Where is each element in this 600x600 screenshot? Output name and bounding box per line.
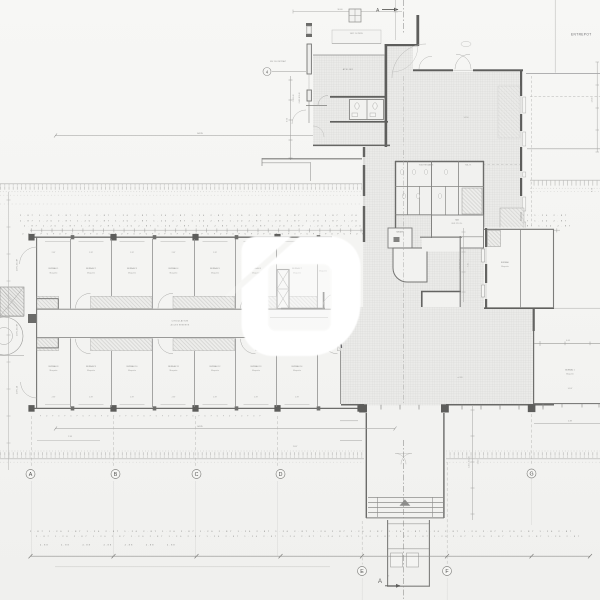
svg-text:2.87: 2.87 — [89, 252, 93, 254]
svg-text:BUREAU 1: BUREAU 1 — [49, 267, 59, 270]
svg-text:2.87 1.20 2.87: 2.87 1.20 2.87 — [17, 324, 19, 336]
svg-text:2.87: 2.87 — [52, 252, 56, 254]
svg-text:ENTREPOT: ENTREPOT — [571, 33, 592, 37]
svg-text:st 320: st 320 — [457, 376, 462, 379]
svg-text:2.87: 2.87 — [213, 252, 217, 254]
svg-text:BUREAU 3: BUREAU 3 — [127, 267, 137, 270]
svg-text:Moquette: Moquette — [211, 369, 219, 372]
svg-text:7.25: 7.25 — [468, 263, 470, 267]
svg-text:Moquette: Moquette — [211, 272, 219, 275]
svg-text:C: C — [195, 472, 199, 478]
svg-text:2.40 1.20 2.40: 2.40 1.20 2.40 — [460, 259, 462, 271]
svg-text:4.88: 4.88 — [568, 421, 572, 423]
svg-text:BUREAU: BUREAU — [501, 261, 510, 264]
svg-text:BUREAU 4: BUREAU 4 — [169, 267, 180, 270]
svg-text:BUREAU 9: BUREAU 9 — [86, 365, 96, 368]
svg-text:2.87 1.20 2.87: 2.87 1.20 2.87 — [17, 259, 19, 271]
svg-text:VEST. DU PERS.: VEST. DU PERS. — [350, 33, 364, 35]
svg-text:Moquette: Moquette — [50, 272, 58, 275]
svg-text:6.64: 6.64 — [566, 340, 570, 342]
svg-text:11.67: 11.67 — [293, 446, 298, 448]
svg-text:Moquette: Moquette — [50, 369, 58, 372]
svg-text:BUREAU 2: BUREAU 2 — [86, 267, 96, 270]
svg-text:2.87: 2.87 — [172, 397, 176, 399]
svg-text:A: A — [29, 472, 33, 478]
svg-text:Moquette: Moquette — [501, 265, 509, 268]
svg-text:TOILETTE DAMES: TOILETTE DAMES — [419, 164, 434, 167]
svg-text:Moquette: Moquette — [170, 369, 178, 372]
svg-text:BUREAU 10: BUREAU 10 — [127, 365, 138, 368]
svg-text:2.40 1.20 2.40: 2.40 1.20 2.40 — [299, 93, 301, 104]
svg-text:2.87 1.20: 2.87 1.20 — [17, 386, 19, 394]
svg-text:BUR. PR. CH.: BUR. PR. CH. — [452, 223, 463, 225]
svg-text:B: B — [114, 472, 118, 478]
svg-text:14.50: 14.50 — [463, 117, 469, 119]
svg-text:84.35: 84.35 — [197, 426, 203, 428]
svg-text:Moquette: Moquette — [170, 272, 178, 275]
svg-text:12.40: 12.40 — [592, 97, 594, 103]
svg-text:D: D — [279, 472, 283, 478]
svg-text:Moquette: Moquette — [128, 272, 136, 275]
svg-text:BUREAU 5: BUREAU 5 — [210, 267, 220, 270]
svg-text:Moquette: Moquette — [87, 369, 95, 372]
svg-text:A: A — [378, 579, 382, 585]
svg-text:84.35: 84.35 — [197, 133, 203, 135]
svg-text:2.87: 2.87 — [295, 397, 299, 399]
svg-text:F D F D F D F D F D F D F D F: F D F D F D F D F D F D F D F D F D F D … — [40, 416, 263, 418]
svg-text:2.98: 2.98 — [68, 436, 72, 438]
svg-text:TOIL. H.: TOIL. H. — [465, 165, 472, 167]
svg-text:2.87: 2.87 — [254, 397, 258, 399]
svg-text:2.87: 2.87 — [89, 397, 93, 399]
svg-text:Moquette: Moquette — [566, 373, 574, 376]
svg-text:Moquette: Moquette — [293, 369, 301, 372]
svg-text:G: G — [529, 471, 533, 477]
svg-text:14.07: 14.07 — [568, 388, 573, 390]
svg-text:1.20 2.40: 1.20 2.40 — [293, 94, 295, 101]
svg-text:BUREAU 1: BUREAU 1 — [565, 369, 574, 372]
svg-text:2.87: 2.87 — [172, 252, 176, 254]
svg-text:BUREAU 8: BUREAU 8 — [49, 365, 59, 368]
svg-text:2.87: 2.87 — [213, 397, 217, 399]
svg-text:2.87: 2.87 — [130, 397, 134, 399]
svg-text:Moquette: Moquette — [87, 272, 95, 275]
svg-text:ACCES RESERVE: ACCES RESERVE — [171, 324, 190, 327]
svg-text:2.87 1.20 2.87 1.20 2.87 1.20: 2.87 1.20 2.87 1.20 2.87 1.20 2.87 1.20 … — [36, 536, 582, 538]
svg-text:CIRCULATION: CIRCULATION — [172, 320, 189, 323]
svg-text:2.87: 2.87 — [130, 252, 134, 254]
svg-text:4.88 4.88 4.88: 4.88 4.88 4.88 4.88 4.88 4.88 4.88 — [40, 544, 176, 546]
svg-text:BUREAU 11: BUREAU 11 — [168, 365, 179, 368]
svg-text:BUREAU 12: BUREAU 12 — [210, 365, 221, 368]
svg-text:12.40: 12.40 — [478, 460, 480, 465]
svg-text:36.60: 36.60 — [337, 9, 343, 11]
svg-text:Moquette: Moquette — [128, 369, 136, 372]
svg-text:Moquette: Moquette — [252, 369, 260, 372]
svg-text:ATELIER: ATELIER — [343, 68, 354, 71]
svg-text:2.87 1.20 2.87 1.20 2.87 1.20: 2.87 1.20 2.87 1.20 2.87 1.20 2.87 1.20 … — [30, 531, 574, 533]
svg-text:2.87: 2.87 — [52, 397, 56, 399]
svg-text:E: E — [360, 569, 364, 575]
svg-text:NIV. DU RETRAIT: NIV. DU RETRAIT — [270, 60, 287, 63]
